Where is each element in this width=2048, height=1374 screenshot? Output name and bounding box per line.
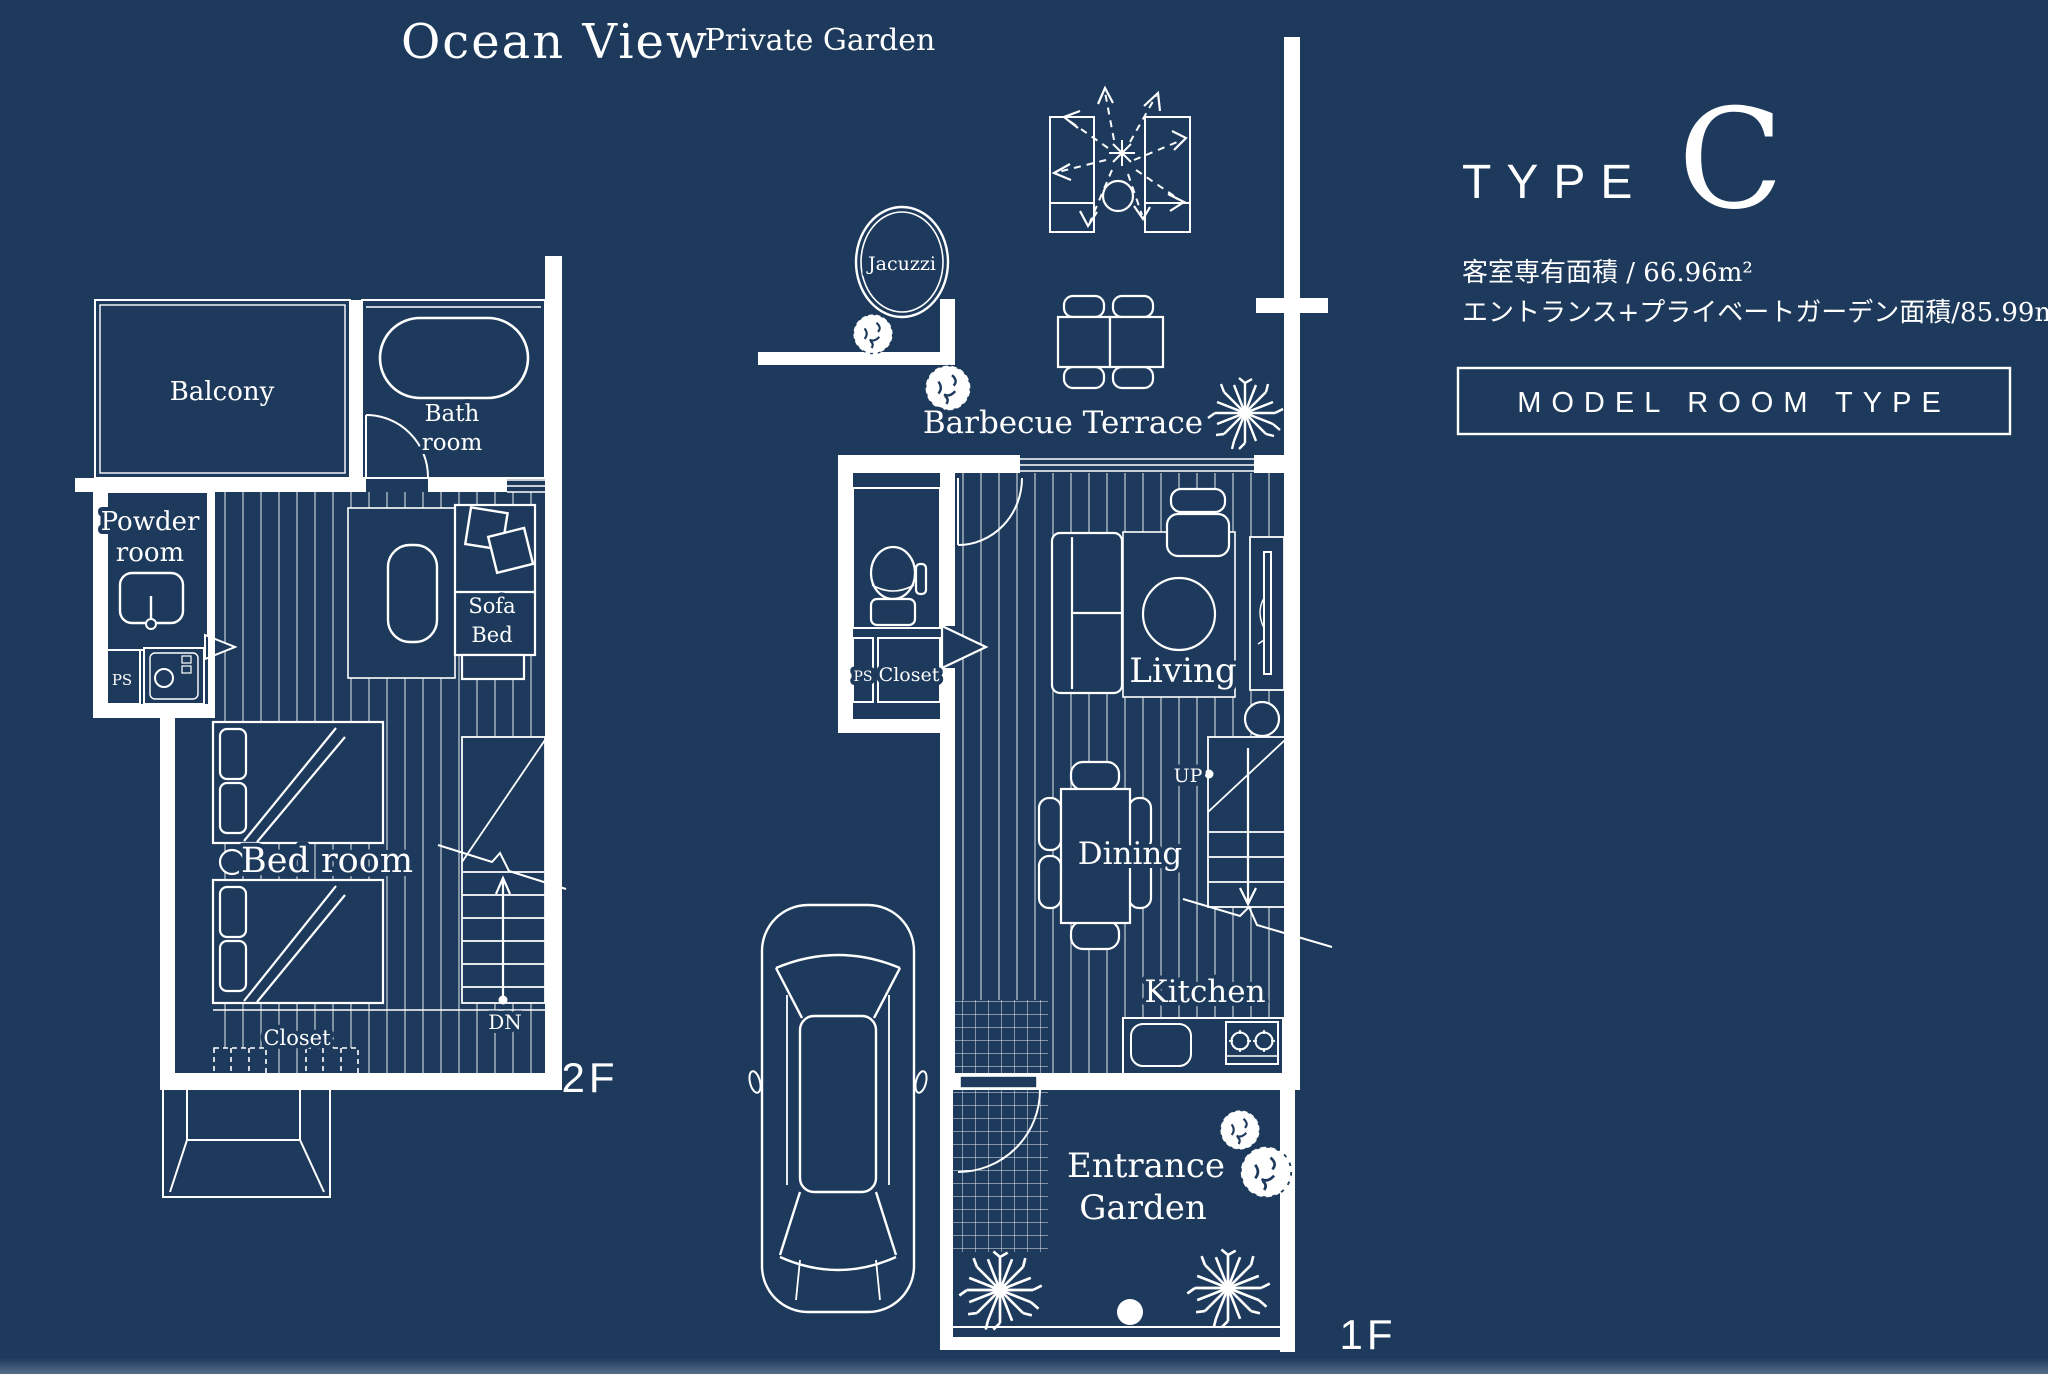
pillow-icon: [488, 528, 533, 573]
closet-label-1f: Closet: [879, 664, 940, 686]
tree-icon: [959, 1252, 1042, 1330]
blueprint-canvas: Balcony Bath room Powder room PS Sofa Be…: [0, 0, 2048, 1374]
sofa-bed-icon: [455, 505, 535, 679]
sofa-bed-label-line2: Bed: [471, 623, 512, 647]
model-room-type-label: MODEL ROOM TYPE: [1517, 387, 1951, 419]
arrow-heads: [1054, 88, 1186, 226]
tree-icon: [1187, 1250, 1270, 1328]
shrub-icon: [1117, 1299, 1143, 1325]
toilet-icon: [871, 547, 926, 625]
boundary-wall: [1284, 37, 1300, 470]
entrance-garden-label-line1: Entrance: [1067, 1146, 1225, 1186]
stair-void-box: [163, 1077, 330, 1197]
sofa-icon: [1052, 533, 1122, 693]
up-label: UP: [1174, 765, 1203, 787]
type-word: TYPE: [1462, 156, 1647, 209]
washing-machine-icon: [144, 648, 204, 704]
entrance-tile-inside: [953, 1000, 1048, 1073]
kitchen-sink-icon: [1131, 1024, 1191, 1066]
living-label: Living: [1129, 651, 1236, 691]
bbq-table-icon: [1058, 296, 1163, 388]
floor-plan-1f: Jacuzzi Barbecue Terrace PS Closet Livin…: [747, 37, 1396, 1358]
tv-board-icon: [1250, 537, 1284, 690]
info-panel: TYPE C 客室専有面積 / 66.96m² エントランス+プライベートガーデ…: [1458, 79, 2048, 434]
entrance-door: [960, 1076, 1037, 1088]
stool-icon-1f: [1245, 702, 1279, 736]
tree-icon: [1208, 378, 1283, 449]
floor-tag-1f: 1F: [1339, 1311, 1396, 1358]
bathroom-label-line1: Bath: [425, 401, 480, 427]
floor-plan-2f: Balcony Bath room Powder room PS Sofa Be…: [75, 256, 619, 1197]
shrub-icon: [853, 314, 892, 353]
car-icon: [747, 905, 928, 1312]
bathtub-icon: [380, 318, 528, 398]
terrace-wall: [758, 352, 955, 365]
bed-icon: [213, 722, 383, 843]
dn-label: DN: [488, 1010, 522, 1034]
floor-plan-page: Balcony Bath room Powder room PS Sofa Be…: [0, 0, 2048, 1374]
page-bottom-edge: [0, 1358, 2048, 1374]
bedroom-label: Bed room: [241, 841, 413, 881]
sofa-bed-label-line1: Sofa: [468, 594, 515, 618]
low-table-icon: [388, 545, 437, 642]
area-entrance-text: エントランス+プライベートガーデン面積/85.99m²: [1462, 298, 2048, 328]
bathroom-door-arc: [366, 415, 428, 477]
window-lines: [1020, 459, 1254, 471]
type-letter: C: [1678, 79, 1784, 240]
bathroom-label-line2: room: [422, 430, 483, 456]
powder-room-label-line1: Powder: [101, 507, 200, 537]
ps-label-1f: PS: [853, 669, 872, 685]
boundary-cross: [1256, 298, 1328, 313]
private-garden-planting: [1050, 88, 1190, 232]
sprinkler-icon: [1109, 140, 1135, 166]
powder-room-label-line2: room: [116, 538, 184, 568]
kitchen-label: Kitchen: [1144, 974, 1265, 1010]
floor-tag-2f: 2F: [561, 1054, 618, 1101]
stove-icon: [1226, 1022, 1278, 1064]
area-room-text: 客室専有面積 / 66.96m²: [1462, 258, 1753, 288]
round-table-icon: [1143, 578, 1215, 650]
shrub-icon: [926, 366, 971, 411]
sink-icon: [120, 573, 183, 629]
private-garden-label: Private Garden: [705, 23, 936, 58]
kitchen-counter: [1123, 1018, 1283, 1075]
bed-icon: [213, 880, 383, 1003]
dining-label: Dining: [1078, 836, 1182, 872]
balcony-label: Balcony: [170, 377, 275, 407]
ocean-view-label: Ocean View: [401, 14, 709, 70]
shrub-icon: [1220, 1110, 1259, 1149]
jacuzzi-label: Jacuzzi: [866, 253, 936, 275]
entrance-garden-label-line2: Garden: [1079, 1188, 1206, 1228]
shrub-icon: [1241, 1147, 1291, 1197]
armchair-icon: [1167, 489, 1229, 556]
barbecue-terrace-label: Barbecue Terrace: [923, 405, 1203, 441]
closet-label-2f: Closet: [263, 1026, 331, 1050]
ps-label-2f: PS: [112, 671, 132, 689]
